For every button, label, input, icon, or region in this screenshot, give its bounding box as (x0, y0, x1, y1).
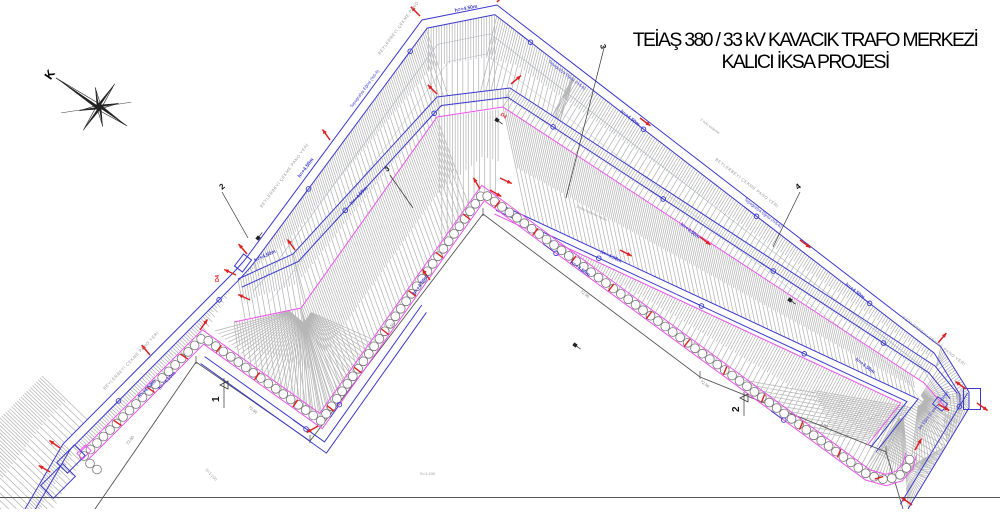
svg-text:2: 2 (731, 406, 742, 412)
svg-text:KALICI İKSA PROJESİ: KALICI İKSA PROJESİ (721, 50, 888, 73)
svg-text:S=1:100: S=1:100 (420, 471, 436, 476)
svg-text:TEİAŞ 380 / 33 kV KAVACIK TRAF: TEİAŞ 380 / 33 kV KAVACIK TRAFO MERKEZİ (633, 28, 978, 51)
svg-text:D4: D4 (215, 274, 221, 282)
svg-text:1: 1 (211, 396, 222, 402)
